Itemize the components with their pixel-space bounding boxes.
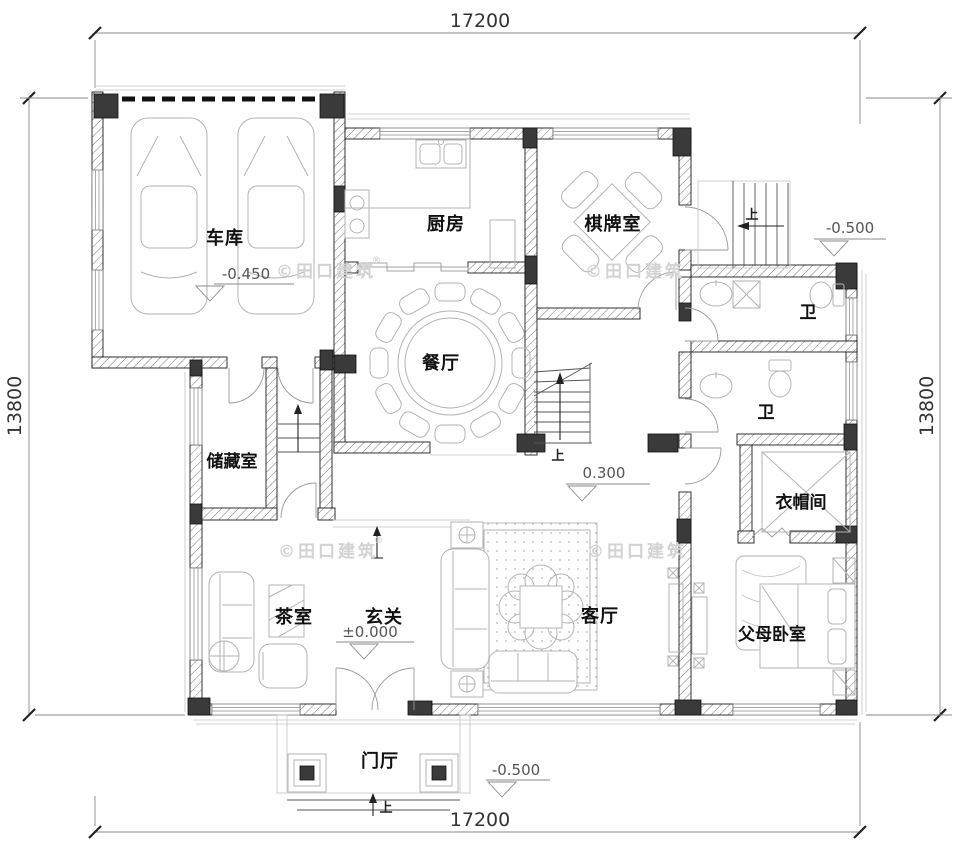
dimension-right: 13800 bbox=[866, 92, 952, 721]
dim-top-value: 17200 bbox=[450, 10, 510, 32]
dim-bottom-value: 17200 bbox=[450, 809, 510, 831]
watermark: ©田口建筑 bbox=[276, 261, 376, 282]
tea-room-label: 茶室 bbox=[275, 606, 313, 628]
bath-upper-label: 卫 bbox=[800, 303, 817, 323]
dim-right-value: 13800 bbox=[916, 376, 938, 436]
stair-up-label: 上 bbox=[551, 449, 564, 464]
floor-plan-canvas: 17200 17200 13800 13800 bbox=[0, 0, 960, 860]
bath-lower-label: 卫 bbox=[758, 403, 775, 423]
watermark: ©田口建筑 bbox=[278, 541, 378, 562]
corridor-top-door bbox=[278, 368, 313, 403]
game-room-label: 棋牌室 bbox=[585, 213, 642, 235]
watermark: ©田口建筑 bbox=[585, 261, 685, 282]
porch-label: 门厅 bbox=[361, 750, 399, 772]
kitchen-label: 厨房 bbox=[427, 213, 465, 235]
cloakroom-label: 衣帽间 bbox=[776, 492, 827, 513]
entrance-double-door bbox=[336, 668, 414, 710]
elevation-terrace-value: -0.500 bbox=[826, 219, 874, 237]
elevation-main-floor: 0.300 bbox=[566, 464, 650, 501]
tea-sofa bbox=[209, 572, 254, 672]
armchair bbox=[259, 644, 307, 688]
elevation-porch-value: -0.500 bbox=[492, 761, 540, 779]
watermark: ©田口建筑 bbox=[587, 541, 687, 562]
corridor-bottom-door bbox=[281, 483, 316, 518]
bath-lower-door bbox=[685, 399, 718, 432]
kitchen-fixtures bbox=[345, 139, 515, 268]
bath-lower-fixtures bbox=[700, 360, 791, 398]
elevation-main-floor-value: 0.300 bbox=[583, 464, 626, 482]
dimension-bottom: 17200 bbox=[89, 722, 866, 838]
watermark-reg: ® bbox=[374, 536, 383, 546]
car-1 bbox=[131, 118, 207, 314]
sofa bbox=[441, 549, 489, 669]
exterior-stair: 上 bbox=[698, 181, 790, 268]
living-room-label: 客厅 bbox=[581, 605, 619, 627]
cloakroom-wardrobe bbox=[762, 452, 850, 532]
parents-bedroom-label: 父母卧室 bbox=[737, 624, 806, 645]
porch-up-label: 上 bbox=[379, 801, 392, 816]
elevation-garage-value: -0.450 bbox=[222, 265, 270, 283]
elevation-terrace: -0.500 bbox=[814, 219, 886, 256]
dresser bbox=[692, 597, 707, 654]
terrace-door bbox=[685, 207, 728, 250]
fridge bbox=[490, 220, 515, 268]
car-2 bbox=[238, 118, 314, 314]
dimension-top: 17200 bbox=[89, 10, 866, 124]
elevation-foyer: ±0.000 bbox=[336, 623, 414, 659]
garage-cars bbox=[131, 118, 314, 314]
garage-label: 车库 bbox=[206, 227, 244, 249]
corridor-steps bbox=[278, 404, 320, 452]
elevation-porch: -0.500 bbox=[486, 761, 550, 797]
storage-door bbox=[229, 368, 264, 403]
bedroom-door bbox=[685, 448, 721, 484]
bath-upper-fixtures bbox=[700, 280, 844, 308]
dim-left-value: 13800 bbox=[4, 376, 26, 436]
dining-room-label: 餐厅 bbox=[421, 352, 460, 374]
storage-label: 储藏室 bbox=[207, 451, 258, 472]
watermark-reg: ® bbox=[372, 256, 381, 266]
stove bbox=[345, 190, 369, 238]
tea-room-furniture bbox=[209, 572, 307, 688]
terrace-stair-up-label: 上 bbox=[745, 208, 758, 223]
floor-plan-page: 17200 17200 13800 13800 bbox=[0, 0, 960, 860]
loveseat bbox=[489, 651, 577, 693]
foyer-label: 玄关 bbox=[365, 606, 403, 628]
